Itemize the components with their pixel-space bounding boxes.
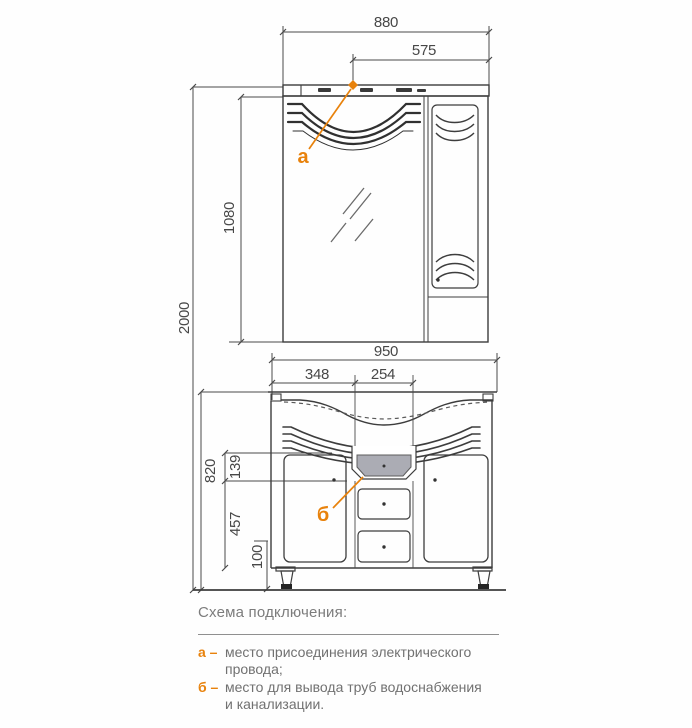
legend-b-line2: и канализации.: [225, 696, 513, 713]
side-door-waves-top: [436, 115, 474, 141]
drawer-top-knob: [382, 502, 385, 505]
point-a-marker: [348, 80, 358, 90]
drawer-bottom-knob: [382, 545, 385, 548]
door-right-knob: [433, 478, 436, 481]
legend-a-line1: место присоединения электрического: [225, 644, 513, 661]
curtain-arcs: [288, 104, 420, 150]
dim-139-label: 139: [227, 455, 244, 479]
legend-key-b: б –: [198, 679, 225, 713]
mirror-cabinet: [283, 85, 489, 342]
connection-scheme-page: 880 575 2000 1080: [0, 0, 692, 728]
legend-title: Схема подключения:: [198, 604, 513, 621]
legend-a-line2: провода;: [225, 661, 513, 678]
basin-front-curve: [281, 400, 493, 425]
mirror-cabinet-body: [283, 96, 488, 342]
vanity-cabinet: [193, 375, 506, 590]
leg-right: [473, 567, 492, 589]
legend-item-b: б – место для вывода труб водоснабжения …: [198, 679, 513, 713]
dim-100-label: 100: [249, 545, 266, 569]
light-cornice: [283, 85, 489, 96]
dim-254-label: 254: [371, 366, 395, 383]
dim-348-label: 348: [305, 366, 329, 383]
dim-2000-label: 2000: [176, 302, 193, 334]
vanity-door-left: [284, 455, 346, 562]
dim-820-label: 820: [202, 459, 219, 483]
leg-left: [276, 567, 295, 589]
side-door-knob: [436, 278, 439, 281]
side-cupboard: [428, 105, 488, 297]
dim-575-label: 575: [412, 42, 436, 59]
door-left-knob: [332, 478, 335, 481]
legend-text-a: место присоединения электрического прово…: [225, 644, 513, 678]
basin-rim-dashed: [284, 402, 490, 419]
point-b-label: б: [317, 504, 329, 526]
dim-457-label: 457: [227, 512, 244, 536]
legend-divider: [198, 634, 499, 635]
legend-key-a: а –: [198, 644, 225, 678]
legend-item-a: а – место присоединения электрического п…: [198, 644, 513, 678]
legend-text-b: место для вывода труб водоснабжения и ка…: [225, 679, 513, 713]
legend: Схема подключения: а – место присоединен…: [198, 604, 513, 714]
dim-cabinet-width-880: [280, 26, 492, 85]
side-cupboard-door: [432, 105, 478, 288]
dim-880-label: 880: [374, 14, 398, 31]
dim-950-label: 950: [374, 343, 398, 360]
drain-recess: [352, 446, 416, 479]
mirror-glint: [331, 188, 373, 242]
side-door-waves-bottom: [436, 255, 474, 281]
dim-1080-label: 1080: [221, 202, 238, 234]
legend-b-line1: место для вывода труб водоснабжения: [225, 679, 513, 696]
point-a-label: а: [297, 146, 309, 168]
lamp-marks: [318, 88, 426, 92]
vanity-door-right: [424, 455, 488, 562]
connection-point-b: б: [317, 477, 363, 526]
